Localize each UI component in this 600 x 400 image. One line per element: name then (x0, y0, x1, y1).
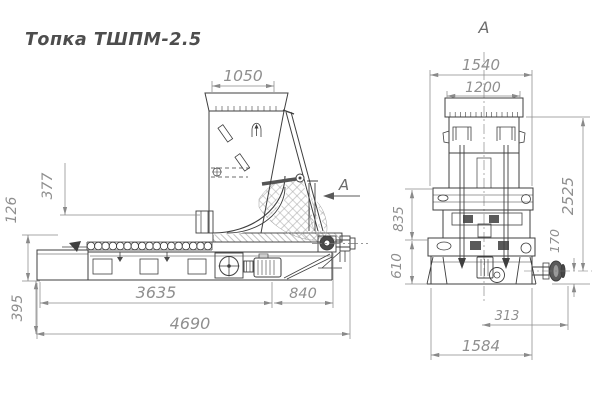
dim-shaft-axis-height: 170 (547, 229, 562, 253)
dim-grate-length: 3635 (136, 283, 177, 302)
view-a-label: А (478, 18, 490, 37)
dim-overall-height: 2525 (559, 177, 577, 215)
dim-grate-height: 126 (4, 197, 20, 224)
dim-overall-length: 4690 (170, 314, 211, 333)
front-shaft (524, 261, 592, 281)
drawing-title: Топка ТШПМ-2.5 (25, 30, 202, 50)
dim-base-width: 1584 (462, 337, 500, 355)
front-base (427, 256, 536, 284)
conveyor-frame (37, 233, 342, 280)
dim-drive-length: 840 (289, 286, 317, 302)
dim-feed-height: 377 (40, 173, 56, 200)
dim-shaft-protrusion: 313 (495, 309, 520, 324)
dim-upper-height: 835 (391, 206, 407, 232)
dim-hopper-width: 1200 (465, 80, 501, 96)
engineering-drawing: Топка ТШПМ-2.5 (0, 0, 600, 400)
drawing-svg: Топка ТШПМ-2.5 (0, 0, 600, 400)
chain-grate (87, 242, 212, 250)
section-arrow-label: А (338, 176, 349, 194)
drive-sprocket (312, 236, 368, 268)
dim-lower-height: 610 (389, 253, 405, 279)
drive-unit (215, 253, 332, 279)
dim-ash-box-height: 395 (10, 295, 26, 322)
dim-hopper-top-width: 1050 (223, 67, 263, 85)
side-view (37, 93, 368, 280)
dim-frame-width: 1540 (462, 56, 500, 74)
front-frame (428, 188, 535, 256)
